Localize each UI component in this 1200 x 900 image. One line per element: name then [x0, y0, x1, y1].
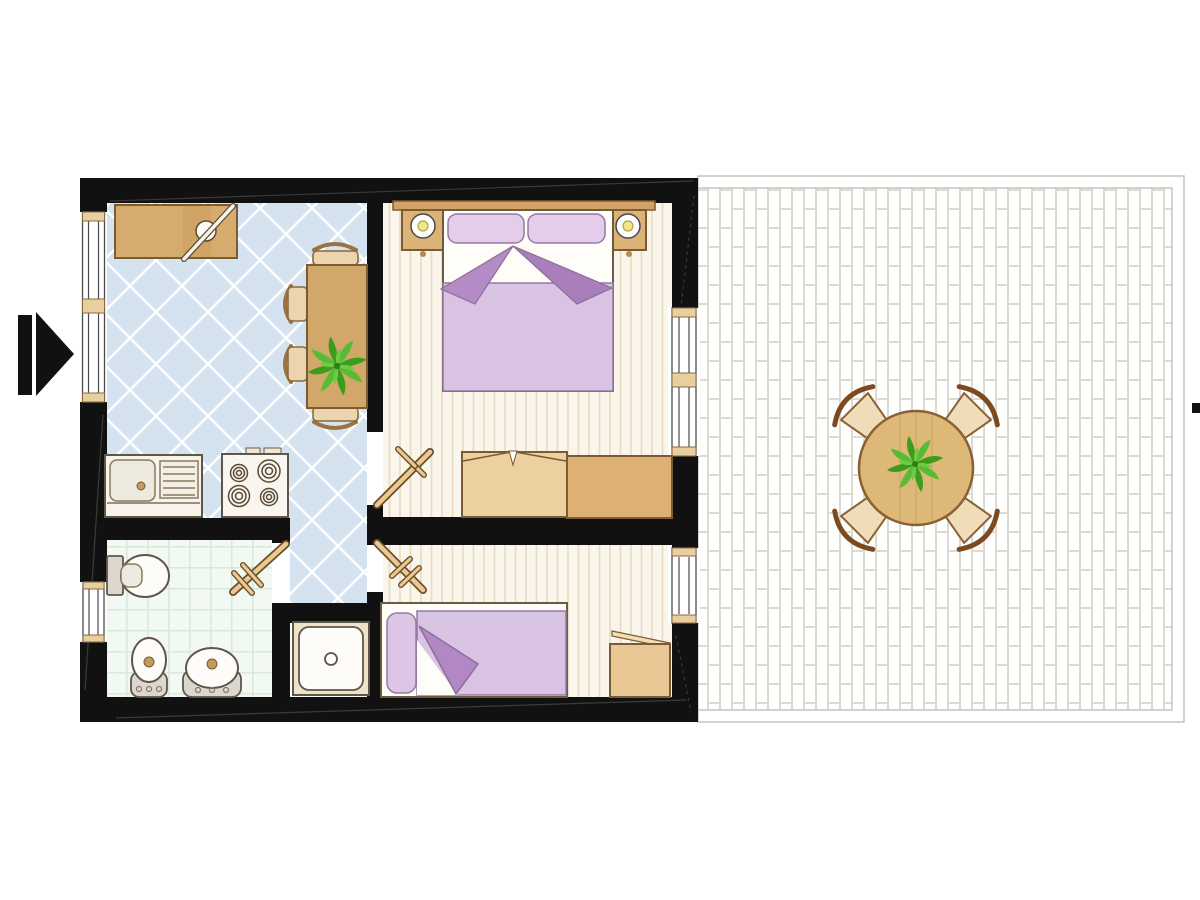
- kitchen-counter-desk: [115, 205, 237, 259]
- kitchen-sink-unit: [105, 455, 202, 517]
- single-bed-pillow: [387, 613, 416, 693]
- edge-tick-mark: [1192, 403, 1200, 413]
- shower-tray: [293, 622, 369, 695]
- master-bedroom-window: [668, 308, 700, 456]
- nightstand-knob: [420, 251, 426, 257]
- pillow-left: [448, 214, 524, 243]
- floor-plan-drawing: [0, 0, 1200, 900]
- pillow-right: [528, 214, 605, 243]
- nightstand-knob: [626, 251, 632, 257]
- sink-drain: [137, 482, 145, 490]
- wardrobe-right-section: [567, 456, 672, 518]
- wall-hallway-bottom: [272, 603, 383, 623]
- kitchen-stove: [222, 448, 288, 517]
- wall-kitchen-bathroom: [80, 518, 290, 540]
- hallway-floor: [290, 518, 367, 603]
- wall-bedroom-divider: [367, 517, 698, 545]
- lamp-left-icon: [411, 214, 435, 238]
- second-bedroom-window: [668, 548, 700, 623]
- single-bed-group: [381, 603, 567, 697]
- bathroom-window: [80, 582, 107, 642]
- wardrobe: [462, 451, 672, 518]
- wall-hall-bedroom1-upper: [367, 203, 383, 432]
- bidet: [131, 638, 167, 697]
- floor-plan-page: [0, 0, 1200, 900]
- lamp-right-icon: [616, 214, 640, 238]
- washbasin: [183, 648, 241, 697]
- dining-table: [307, 265, 367, 408]
- sink-basin: [110, 460, 155, 501]
- wardrobe-left-section: [462, 452, 567, 517]
- shower-drain: [325, 653, 337, 665]
- toilet: [107, 555, 169, 597]
- entry-window-strip: [80, 212, 107, 402]
- room-terrace: [698, 176, 1184, 722]
- entry-arrow-icon: [18, 312, 74, 396]
- headboard: [393, 201, 655, 210]
- wall-bathroom-right-top: [272, 518, 290, 543]
